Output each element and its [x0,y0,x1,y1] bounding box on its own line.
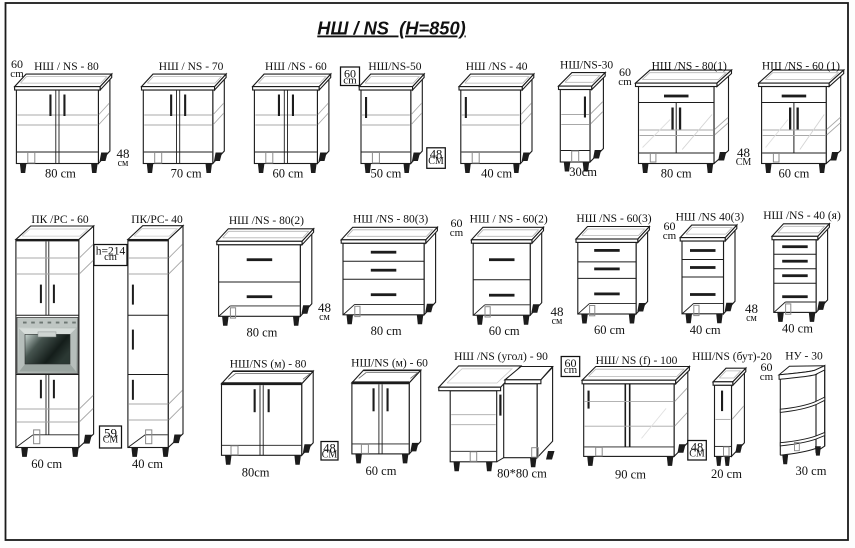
svg-text:НШ/NS (м) - 60: НШ/NS (м) - 60 [351,358,428,370]
svg-text:40 cm: 40 cm [782,321,813,335]
svg-text:60 cm: 60 cm [31,457,62,471]
svg-text:90 cm: 90 cm [615,468,646,482]
svg-text:НШ /NS - 80(3): НШ /NS - 80(3) [353,214,428,226]
svg-text:60 cm: 60 cm [778,167,809,181]
svg-text:СМ: СМ [736,157,752,168]
svg-text:НШ /NS - 60 (1): НШ /NS - 60 (1) [762,60,840,72]
svg-text:НШ/NS-50: НШ/NS-50 [368,61,421,73]
svg-text:cm: cm [760,371,774,383]
svg-text:40 cm: 40 cm [481,167,512,181]
svg-text:60 cm: 60 cm [366,464,397,478]
svg-text:НУ - 30: НУ - 30 [785,350,823,362]
svg-text:60 cm: 60 cm [272,167,303,181]
svg-text:80 cm: 80 cm [45,167,76,181]
svg-text:см: см [552,316,563,327]
svg-text:НШ /NS - 40 (я): НШ /NS - 40 (я) [763,210,841,222]
svg-text:НШ /NS - 80(2): НШ /NS - 80(2) [229,215,304,227]
svg-text:НШ /NS (угол) - 90: НШ /NS (угол) - 90 [454,351,548,363]
svg-text:НШ/ NS (f) - 100: НШ/ NS (f) - 100 [596,355,678,367]
svg-text:20 cm: 20 cm [711,467,742,481]
svg-text:НШ/NS (м) - 80: НШ/NS (м) - 80 [230,358,307,370]
svg-text:см: см [118,158,129,169]
svg-text:30cm: 30cm [569,165,597,179]
svg-text:cm: cm [564,364,578,376]
svg-text:40 cm: 40 cm [690,323,721,337]
svg-text:cm: cm [104,252,117,263]
svg-text:НШ /NS - 60(3): НШ /NS - 60(3) [576,213,651,225]
svg-text:cm: cm [343,75,357,87]
svg-text:ПК/РС- 40: ПК/РС- 40 [131,214,183,226]
svg-text:cm: cm [10,68,24,80]
svg-text:80 cm: 80 cm [661,167,692,181]
svg-text:НШ / NS - 80: НШ / NS - 80 [34,61,99,73]
svg-text:60 cm: 60 cm [594,323,625,337]
svg-text:НШ / NS - 60(2): НШ / NS - 60(2) [470,214,548,226]
svg-text:60 cm: 60 cm [489,324,520,338]
svg-text:СМ: СМ [103,435,119,446]
svg-text:НШ /NS - 60: НШ /NS - 60 [265,61,327,73]
svg-text:80 cm: 80 cm [371,324,402,338]
svg-text:см: см [319,312,330,323]
svg-text:ПК /РС - 60: ПК /РС - 60 [31,214,89,226]
svg-text:СМ: СМ [322,450,338,461]
svg-text:70 cm: 70 cm [171,167,202,181]
svg-text:СМ: СМ [428,156,444,167]
svg-text:НШ /NS - 40: НШ /NS - 40 [466,61,528,73]
svg-text:80*80 cm: 80*80 cm [497,467,547,481]
svg-text:cm: cm [618,76,632,88]
svg-text:НШ / NS (H=850): НШ / NS (H=850) [317,18,465,39]
svg-text:СМ: СМ [689,449,705,460]
svg-text:cm: cm [450,227,464,239]
svg-text:50 cm: 50 cm [370,167,401,181]
svg-text:cm: cm [663,230,677,242]
svg-text:НШ /NS 40(3): НШ /NS 40(3) [676,212,745,224]
svg-text:80 cm: 80 cm [246,325,277,339]
svg-text:80cm: 80cm [242,466,270,480]
svg-text:40 cm: 40 cm [132,457,163,471]
svg-text:НШ/NS-30: НШ/NS-30 [560,60,613,72]
svg-text:см: см [746,313,757,324]
svg-text:НШ / NS - 70: НШ / NS - 70 [159,61,224,73]
svg-text:НШ /NS - 80(1): НШ /NS - 80(1) [652,60,727,72]
svg-text:30 cm: 30 cm [796,464,827,478]
